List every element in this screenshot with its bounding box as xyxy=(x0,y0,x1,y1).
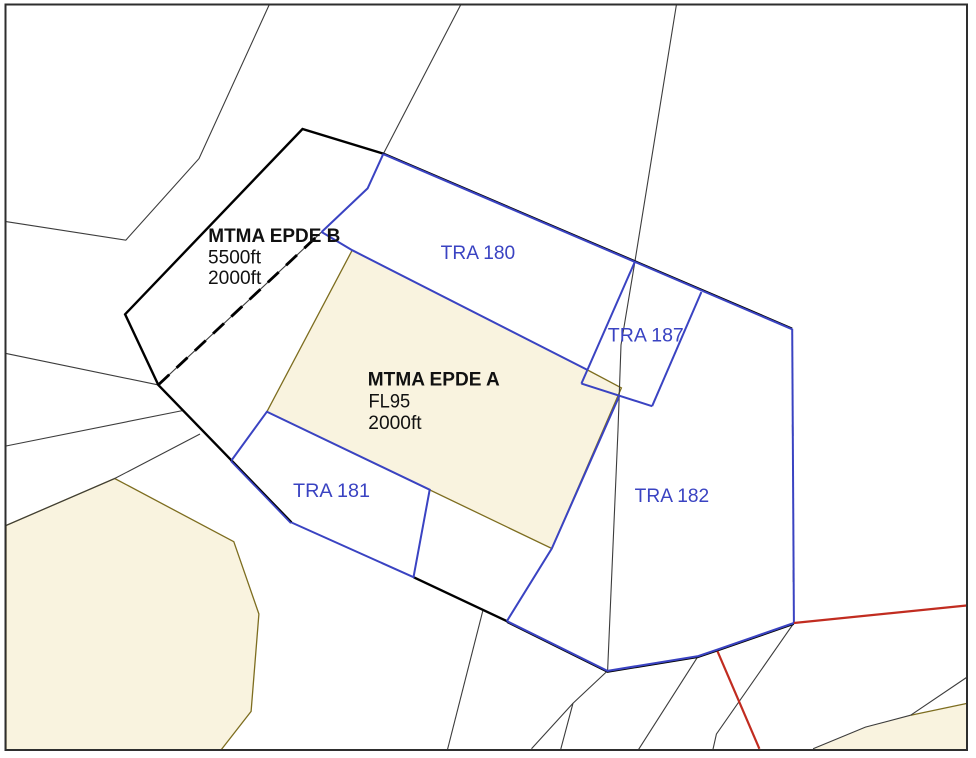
svg-text:TRA 182: TRA 182 xyxy=(635,486,710,507)
svg-text:TRA 181: TRA 181 xyxy=(293,481,370,502)
svg-text:MTMA EPDE B: MTMA EPDE B xyxy=(208,226,340,247)
svg-text:TRA 180: TRA 180 xyxy=(441,243,516,264)
svg-text:TRA 187: TRA 187 xyxy=(608,325,684,346)
svg-text:MTMA EPDE A: MTMA EPDE A xyxy=(368,369,500,390)
svg-text:2000ft: 2000ft xyxy=(208,268,262,289)
svg-text:FL95: FL95 xyxy=(369,392,411,413)
svg-text:5500ft: 5500ft xyxy=(208,248,262,269)
svg-text:2000ft: 2000ft xyxy=(368,413,422,434)
